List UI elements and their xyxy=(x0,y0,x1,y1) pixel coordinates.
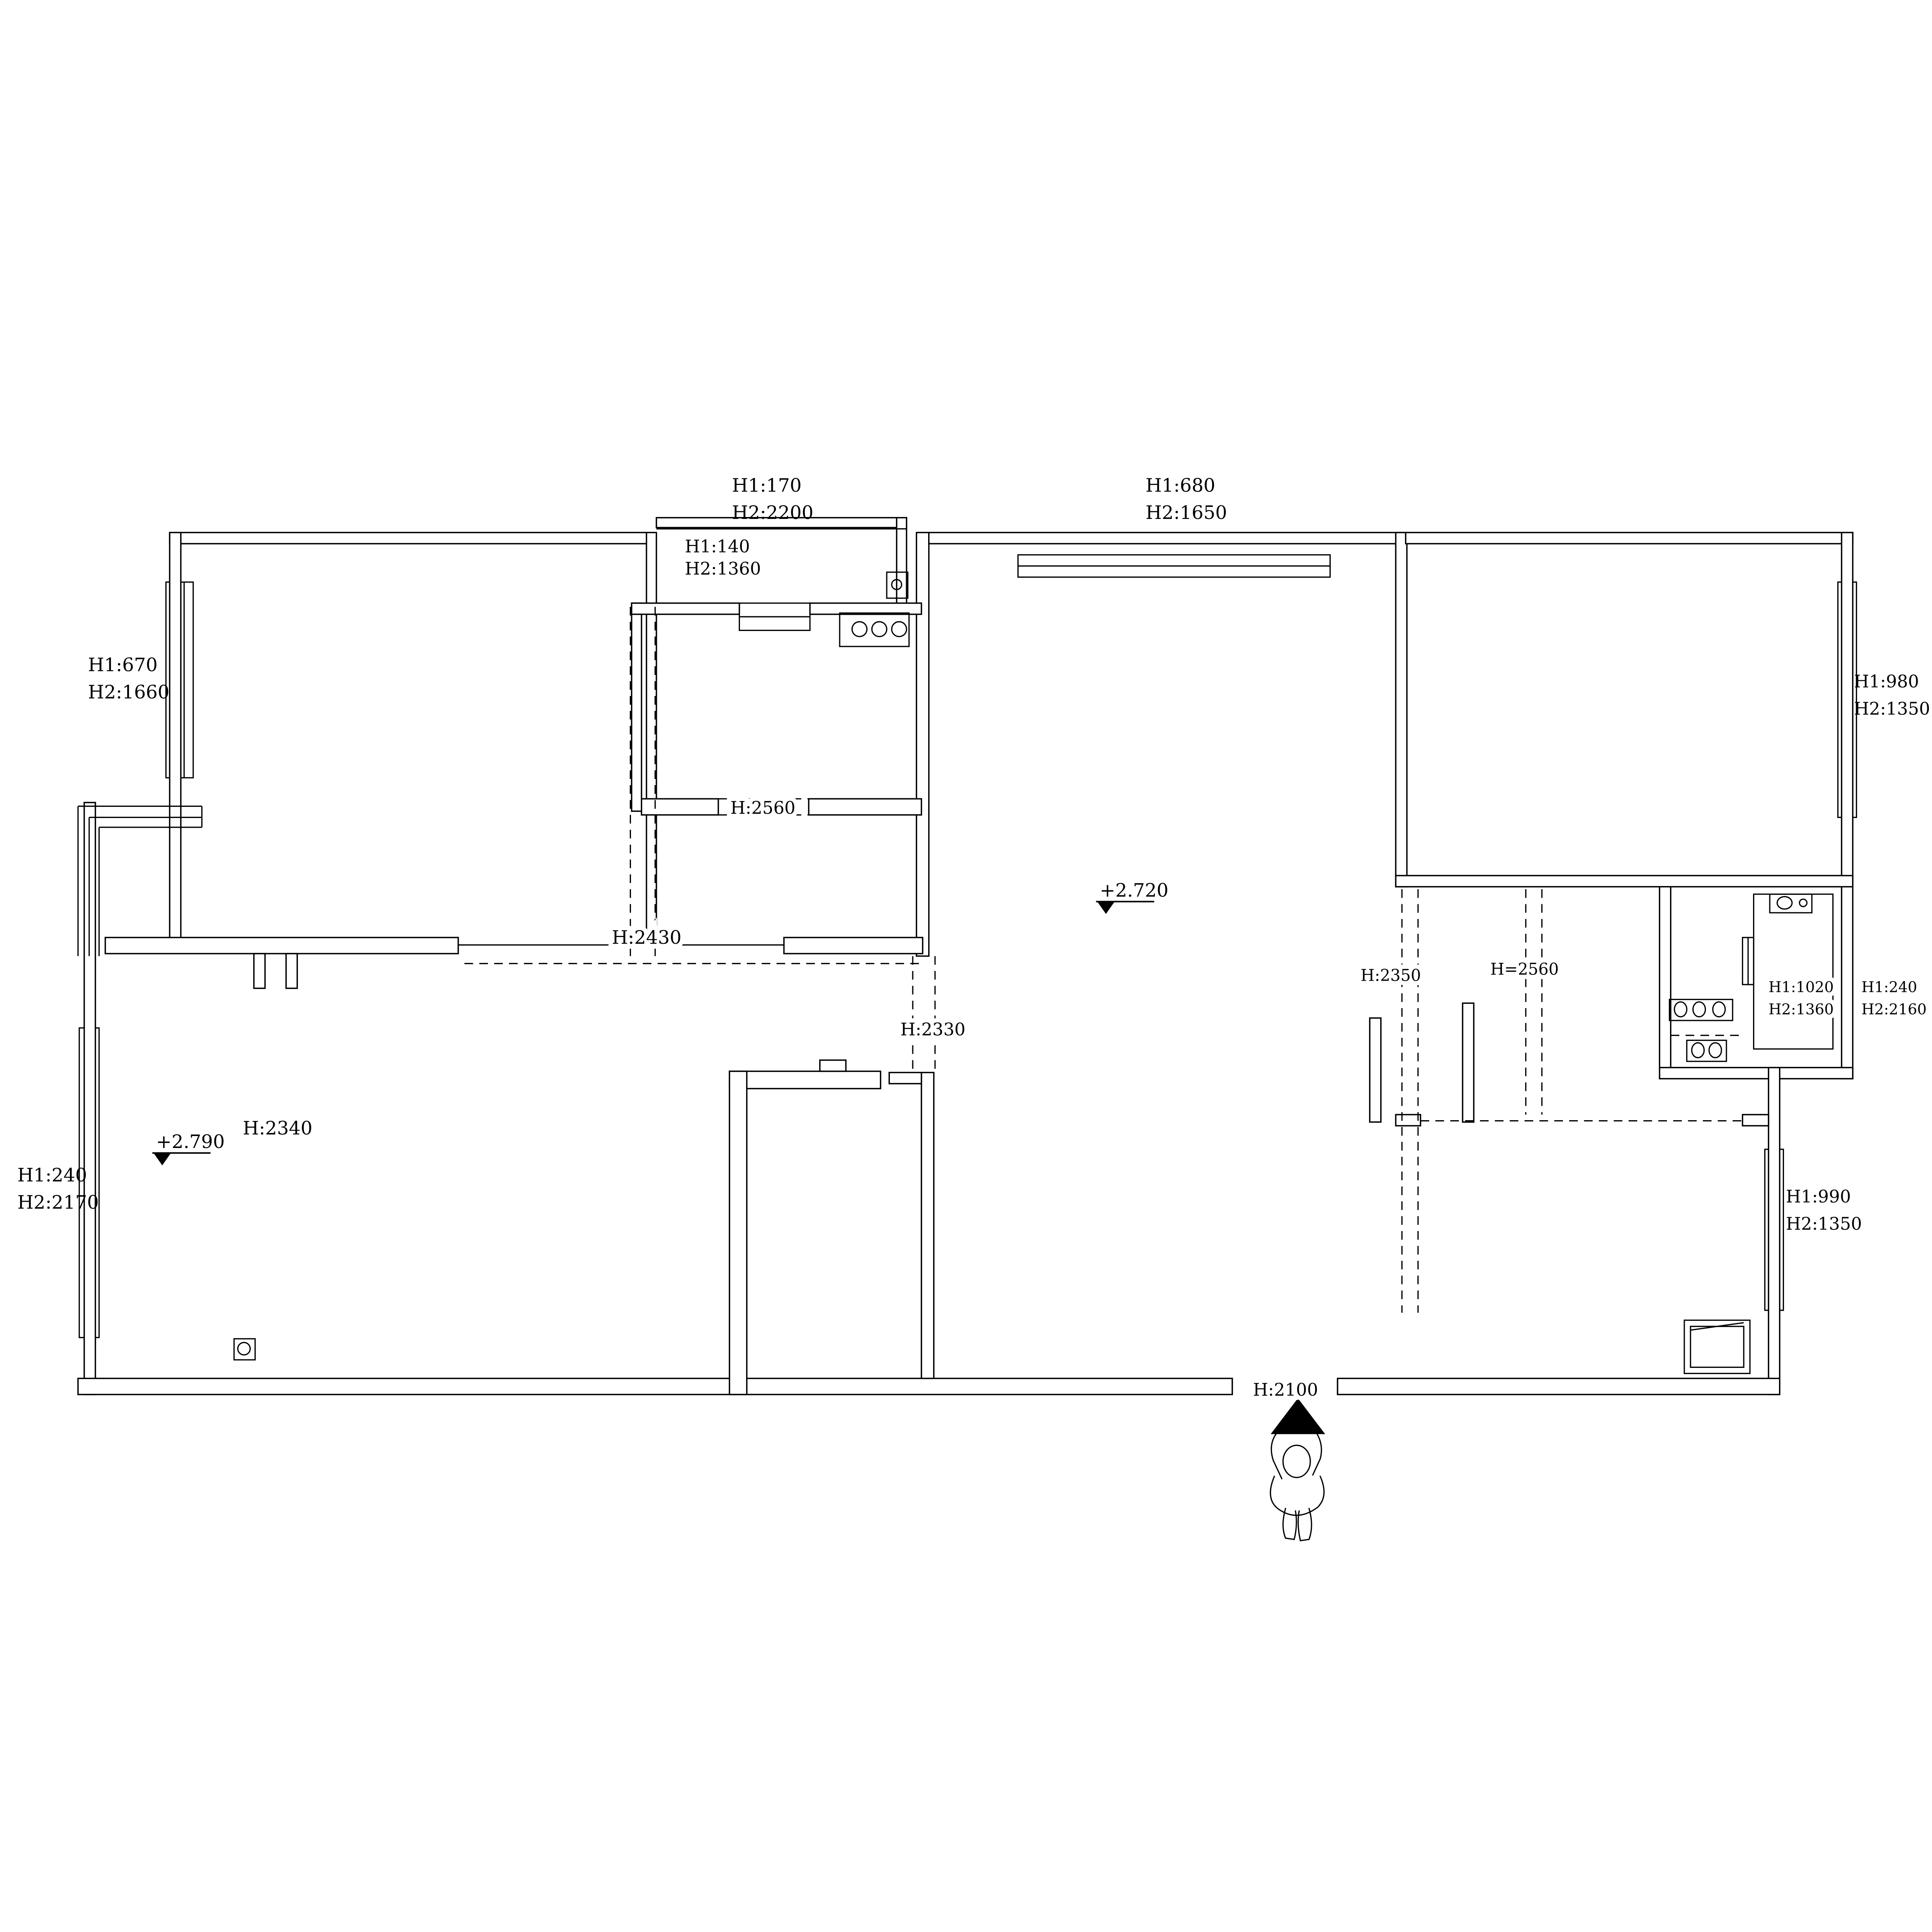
label-elev-2720: +2.720 xyxy=(1100,880,1168,901)
wall-segment xyxy=(1769,1068,1780,1395)
wall-segment xyxy=(820,1060,846,1071)
label-h1-980: H1:980 xyxy=(1854,671,1919,692)
faucet xyxy=(1799,899,1807,906)
fixture-bowl xyxy=(1713,1002,1725,1017)
fixture-bowl xyxy=(1693,1002,1705,1017)
wall-segment xyxy=(922,1073,934,1379)
bathtub-outer xyxy=(1684,1320,1750,1374)
label-h2-1650: H2:1650 xyxy=(1146,502,1227,524)
walls-layer xyxy=(78,518,1853,1395)
wall-segment xyxy=(1463,1003,1474,1122)
entrance-arrow xyxy=(1270,1398,1325,1434)
wall-segment xyxy=(1406,532,1853,544)
person-outline xyxy=(1270,1476,1324,1515)
wall-segment xyxy=(1338,1378,1780,1395)
label-h1-680: H1:680 xyxy=(1146,474,1215,496)
wall-segment xyxy=(1660,887,1671,1068)
label-h2-1660: H2:1660 xyxy=(88,682,170,703)
label-h2-1360-duct: H2:1360 xyxy=(1769,1001,1834,1018)
person-figure xyxy=(1270,1433,1324,1541)
wall-segment xyxy=(1396,532,1407,887)
label-h1-990: H1:990 xyxy=(1786,1186,1851,1207)
elev-triangle-2720 xyxy=(1097,901,1115,914)
wall-segment xyxy=(1396,1115,1420,1126)
wall-segment xyxy=(897,518,907,611)
wall-segment xyxy=(78,1378,1232,1395)
label-h1-170: H1:170 xyxy=(732,474,801,496)
label-h1-140: H1:140 xyxy=(685,536,750,556)
wall-segment xyxy=(641,799,718,815)
label-h1-670: H1:670 xyxy=(88,654,158,676)
person-outline xyxy=(1271,1433,1282,1479)
cooktop-counter xyxy=(840,613,909,647)
floor-plan-canvas: H1:170H2:2200H1:680H2:1650H1:670H2:1660H… xyxy=(0,0,1932,1932)
wall-segment xyxy=(1842,532,1853,1078)
floor-drain xyxy=(238,1342,250,1355)
wall-segment xyxy=(730,1071,881,1088)
wall-segment xyxy=(730,1071,747,1395)
label-h-2350: H:2350 xyxy=(1361,966,1421,985)
wall-segment xyxy=(1370,1018,1381,1122)
wall-segment xyxy=(917,532,929,956)
label-h2-2200: H2:2200 xyxy=(732,502,813,524)
label-elev-2790: +2.790 xyxy=(156,1131,225,1153)
label-h-2330: H:2330 xyxy=(900,1019,965,1039)
label-h1-240-left: H1:240 xyxy=(17,1165,87,1186)
person-head xyxy=(1283,1445,1311,1477)
wall-segment xyxy=(1660,1068,1853,1079)
wall-segment xyxy=(170,532,181,946)
burner xyxy=(892,622,906,636)
vanity-counter-2 xyxy=(1687,1040,1726,1061)
window xyxy=(739,603,810,631)
wall-segment xyxy=(929,532,1406,544)
wall-segment xyxy=(254,954,265,988)
basin-bowl xyxy=(1777,897,1792,909)
label-h2-2170: H2:2170 xyxy=(17,1192,99,1213)
person-outline xyxy=(1313,1433,1321,1475)
burner xyxy=(852,622,867,636)
wall-segment xyxy=(784,937,923,954)
wall-segment xyxy=(632,603,740,614)
round-fixtures-layer xyxy=(238,580,1807,1478)
burner xyxy=(872,622,886,636)
window xyxy=(1743,937,1754,985)
fixtures-layer xyxy=(234,572,1833,1374)
label-h-2100-entry: H:2100 xyxy=(1253,1379,1318,1400)
person-outline xyxy=(1298,1509,1312,1541)
wall-segment xyxy=(1396,876,1853,887)
wall-segment xyxy=(646,532,656,946)
elev-triangle-2790 xyxy=(153,1153,171,1165)
wall-segment xyxy=(286,954,297,988)
window xyxy=(1018,555,1330,577)
label-h-2430: H:2430 xyxy=(612,927,681,948)
fixture-bowl xyxy=(1674,1002,1687,1017)
fixture-bowl xyxy=(1709,1043,1721,1058)
label-h-2340: H:2340 xyxy=(243,1117,312,1139)
washbasin-counter xyxy=(1770,894,1812,913)
duct-shaft xyxy=(1753,894,1833,1049)
label-h1-1020: H1:1020 xyxy=(1769,978,1834,996)
fixture-bowl xyxy=(1692,1043,1704,1058)
label-h2-2160: H2:2160 xyxy=(1861,1001,1927,1018)
bathtub-inner xyxy=(1690,1327,1744,1367)
label-h2-1350-right-top: H2:1350 xyxy=(1854,698,1930,719)
wall-segment xyxy=(170,532,656,544)
label-h2-1360-balcony: H2:1360 xyxy=(685,558,761,579)
wall-segment xyxy=(632,603,642,811)
wall-segment xyxy=(105,937,458,954)
label-h2-1350-right-bottom: H2:1350 xyxy=(1786,1214,1862,1234)
label-h-2560-hall: H=2560 xyxy=(1490,959,1559,978)
floor-plan-page: H1:170H2:2200H1:680H2:1650H1:670H2:1660H… xyxy=(0,0,1932,1932)
wall-segment xyxy=(1743,1115,1769,1126)
wall-segment xyxy=(809,799,922,815)
label-h1-240-right: H1:240 xyxy=(1861,978,1917,996)
label-h-2560-kitchen: H:2560 xyxy=(730,798,795,818)
wall-segment xyxy=(889,1073,921,1084)
